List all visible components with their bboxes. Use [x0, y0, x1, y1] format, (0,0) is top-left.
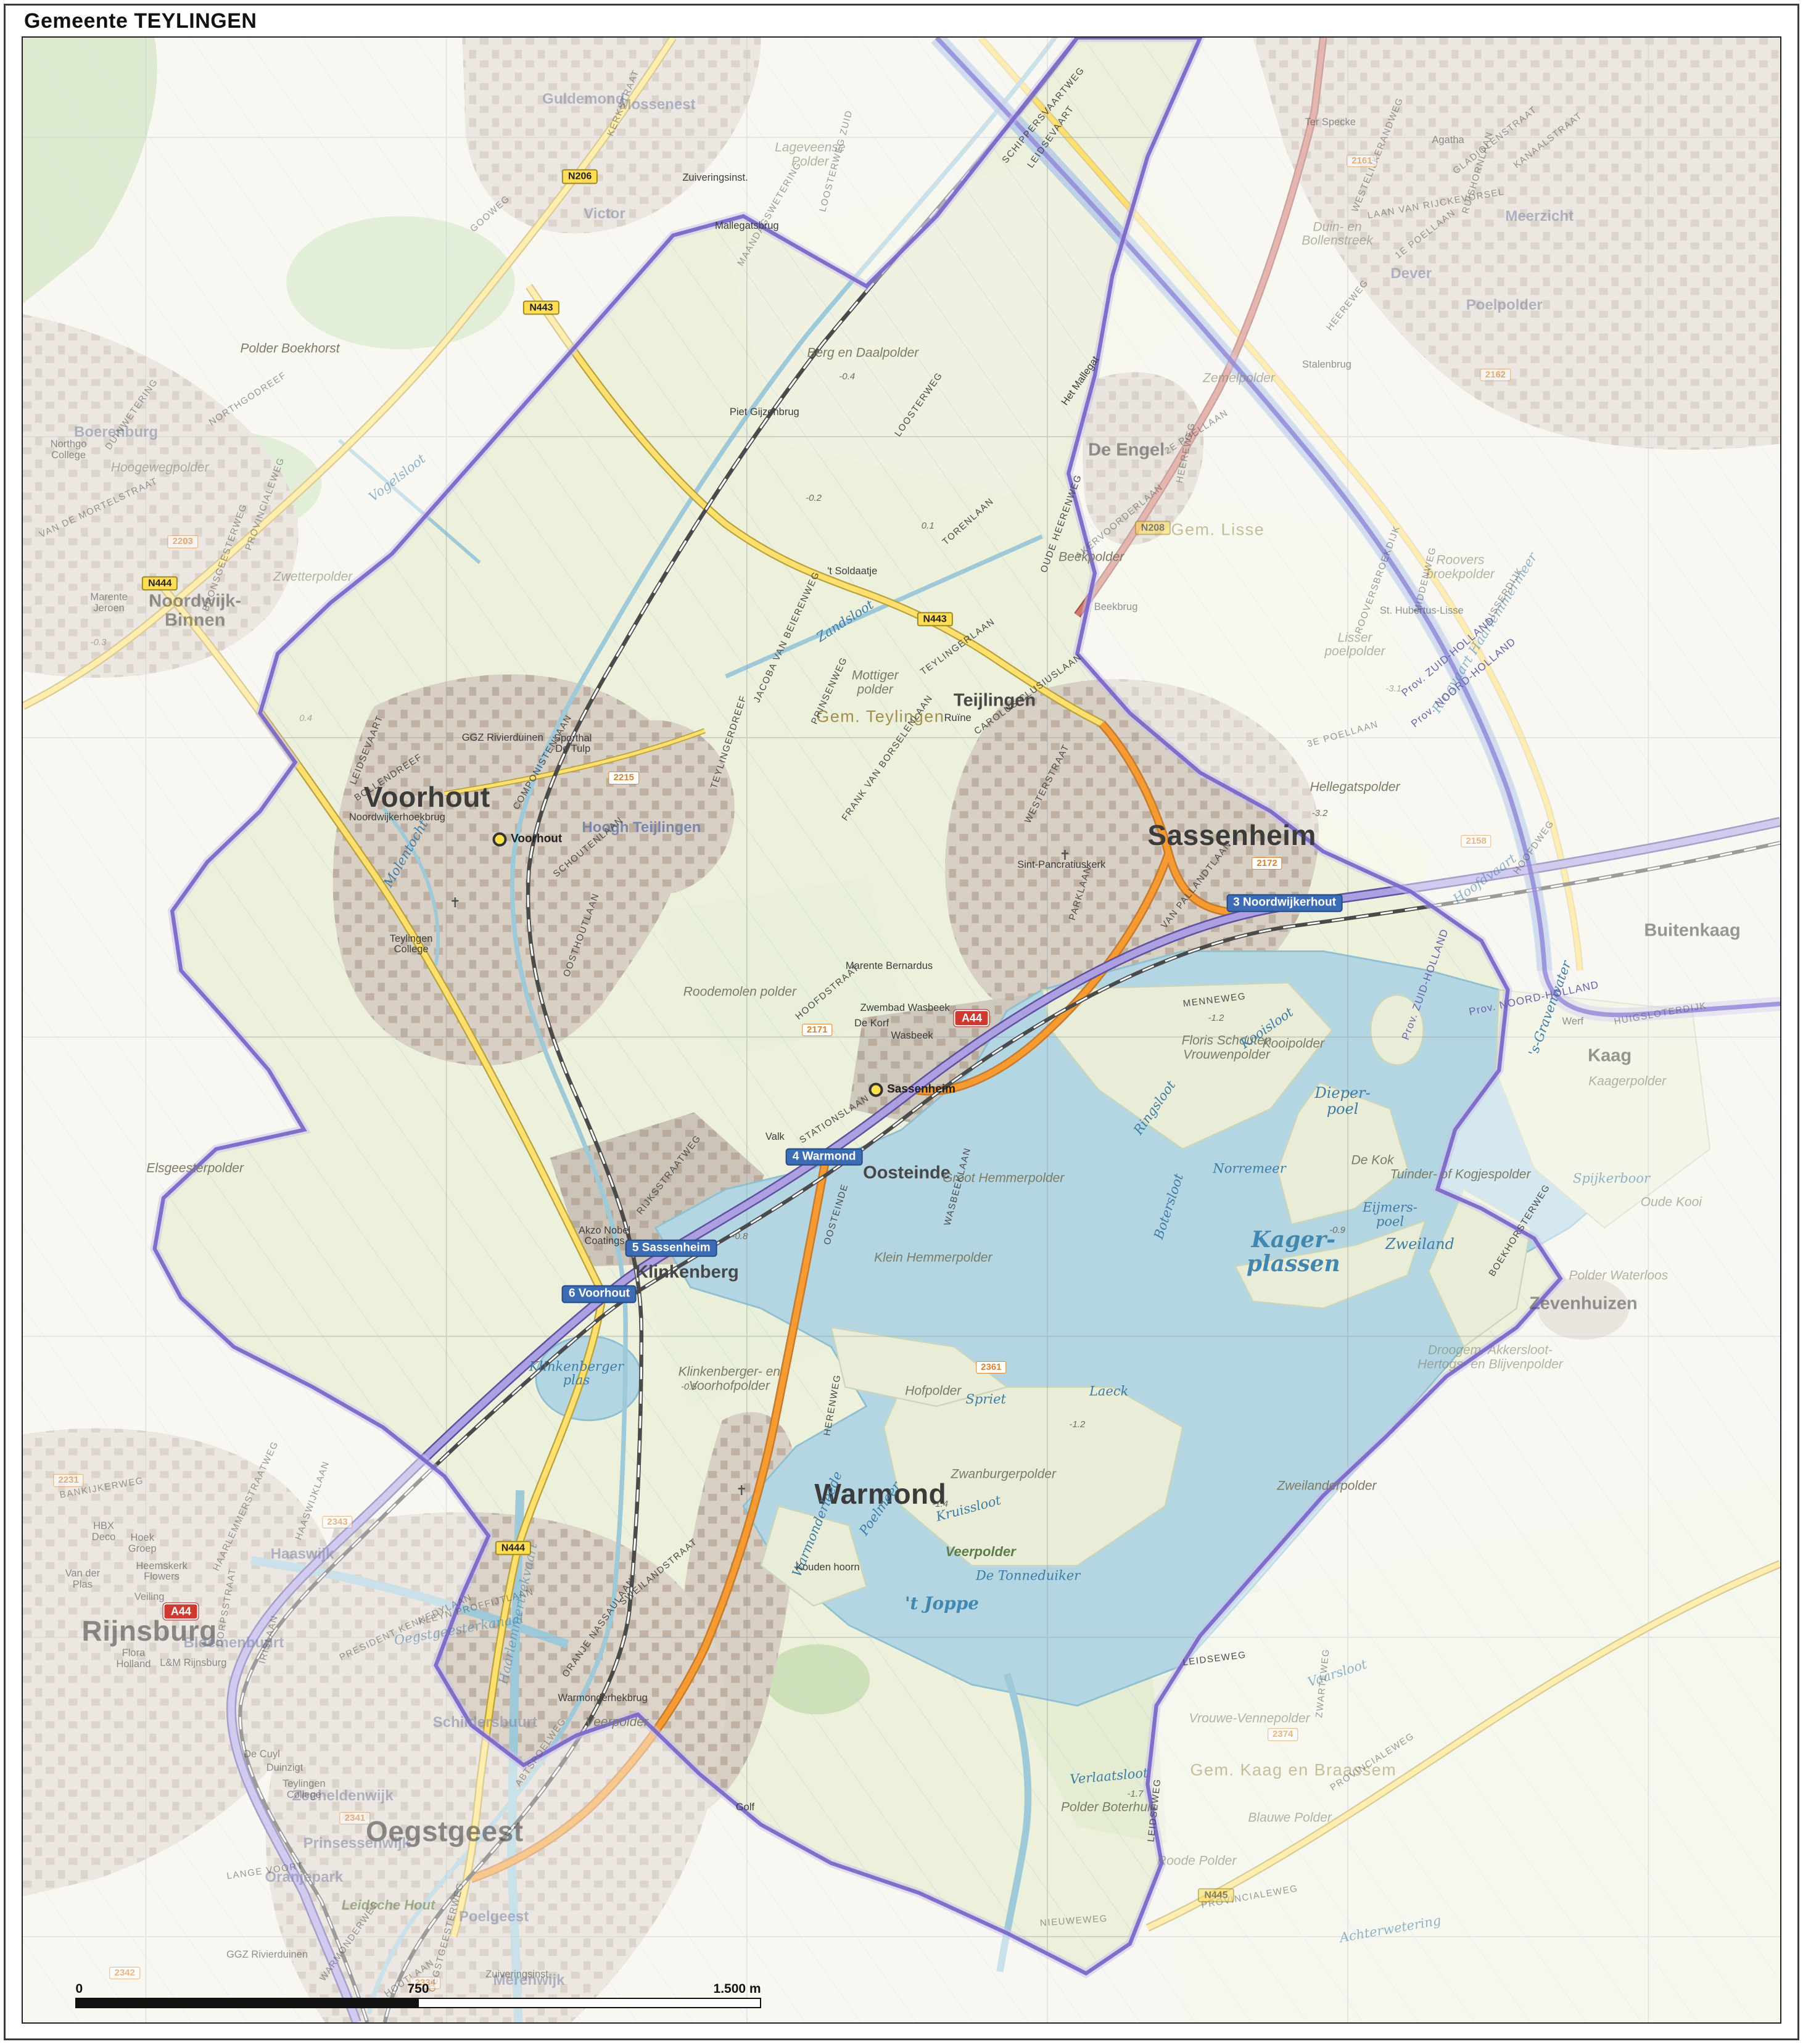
map-label: Polder Waterloos [1569, 1269, 1669, 1284]
map-label: Roodemolen polder [683, 986, 796, 1000]
map-label: Sint-Pancratiuskerk [1017, 860, 1105, 871]
map-label: Sporthal De Tulp [554, 733, 592, 756]
map-label: ROOVERSBROEKDIJK [1353, 524, 1402, 635]
map-label: Dever [1390, 266, 1432, 282]
map-label: LEIDSEWEG [1182, 1650, 1247, 1668]
map-label: N443 [917, 612, 953, 626]
map-label: Zwetterpolder [273, 571, 352, 585]
map-label: PRESIDENT KENNEDYLAAN [338, 1593, 474, 1663]
map-label: HUIGSLOTERDIJK [1614, 1001, 1708, 1027]
map-label: 2161 [1347, 154, 1377, 167]
map-label: PROVINCIALEWEG [1200, 1884, 1298, 1911]
map-label: NORTHGODREEF [207, 370, 289, 427]
map-label: IRISLAAN [258, 1614, 281, 1665]
map-label: Floris Schouten Vrouwenpolder [1182, 1034, 1272, 1061]
map-label: TORENLAAN [941, 497, 996, 548]
map-label: Poelgeest [459, 1909, 529, 1925]
map-label: 2E POELLAAN [1163, 408, 1231, 457]
map-label: 2158 [1461, 835, 1491, 847]
map-label: Warmond [814, 1479, 946, 1510]
map-label: Norremeer [1213, 1162, 1285, 1176]
map-label: MIDDENWEG [1412, 545, 1438, 613]
map-label: Stalenbrug [1302, 360, 1351, 371]
map-label: HOOFDWEG [1512, 818, 1556, 876]
map-label: 6 Voorhout [562, 1285, 637, 1303]
map-label: Haarlemmertrekvaart [497, 1541, 540, 1685]
station-name: Voorhout [511, 833, 562, 846]
map-label: Sassenheim [868, 1082, 955, 1097]
map-label: LEIDSEVAART [1026, 104, 1076, 170]
map-label: Prov. NOORD-HOLLAND [1409, 636, 1519, 730]
map-label: WARMONDERWEG [318, 1899, 382, 1984]
map-label: -0.5 [681, 1382, 697, 1392]
station-dot [492, 833, 506, 847]
map-label: GOOWEG [469, 194, 513, 234]
map-label: Oosteinde [863, 1163, 951, 1182]
map-label: Kooisloot [1238, 1005, 1296, 1051]
map-label: Zevenhuizen [1529, 1294, 1638, 1313]
map-label: Golf [736, 1803, 754, 1814]
map-label: 1E POELLAAN [1393, 207, 1458, 260]
map-label: Zandsloot [814, 598, 877, 645]
map-label: Teylingen College [390, 934, 433, 956]
map-label: Duinzigt [266, 1763, 303, 1774]
map-label: Voorhout [364, 783, 490, 814]
map-label: Zwembad Wasbeek [860, 1003, 950, 1014]
map-label: Oegstgeesterkanaal [393, 1611, 525, 1647]
map-label: 2162 [1480, 369, 1511, 381]
map-label: Vogelsloot [366, 452, 428, 505]
map-label: ABTSPOELWEG [514, 1716, 569, 1789]
map-label: Prov. NOORD-HOLLAND [1468, 979, 1600, 1018]
map-label: Sassenheim [1147, 820, 1316, 851]
map-label: De Tonneduiker [976, 1569, 1080, 1583]
map-label: Warmonderhekbrug [558, 1694, 648, 1705]
map-label: Ter Specke [1305, 117, 1356, 128]
map-label: Poelpolder [1466, 297, 1543, 313]
map-label: Vaarsloot [1306, 1657, 1369, 1689]
map-label: PARKLAAN [1068, 865, 1094, 921]
map-label: 2172 [1252, 857, 1282, 870]
map-label: HOUTLAAN [382, 1958, 436, 1999]
map-label: Het Mallegat [1060, 355, 1102, 408]
map-label: LAAN VAN RIJCKEVORSEL [1366, 188, 1504, 221]
map-label: Prinsessenwijk [303, 1836, 410, 1852]
map-label: STATIONSLAAN [798, 1093, 872, 1145]
map-label: Lageveense Polder [775, 141, 845, 168]
map-label: -1.7 [1127, 1789, 1143, 1799]
map-label: Klinkenberg [635, 1263, 739, 1282]
map-label: Buitenkaag [1644, 921, 1740, 940]
map-label: 5 Sassenheim [625, 1240, 717, 1258]
map-label: LISSERDIJK [1483, 566, 1525, 625]
map-label: Polder Boterhuis [1061, 1801, 1157, 1815]
map-label: DUINWETERING [104, 377, 160, 452]
map-label: Mallegatsbrug [715, 221, 779, 232]
map-label: Zwanburgerpolder [951, 1467, 1056, 1481]
map-label: Spijkerboor [1573, 1172, 1650, 1186]
map-label: Tuinder- of Kogjespolder [1390, 1168, 1530, 1182]
map-label: Zweiland [1385, 1237, 1454, 1253]
map-label: Hoogh Teijlingen [582, 820, 701, 836]
map: VoorhoutSassenheimWarmondRijnsburgOegstg… [22, 36, 1781, 2024]
map-label: Groot Hemmerpolder [943, 1172, 1064, 1186]
map-label: MAANDAGSWETERING [736, 160, 804, 268]
map-label: Voorhout [492, 833, 562, 847]
map-label: Teijlingen [954, 691, 1036, 710]
map-label: Meerzicht [1505, 208, 1574, 225]
map-label: Wasbeek [891, 1031, 933, 1042]
map-label: -0.8 [732, 1232, 748, 1242]
map-label: N206 [562, 170, 598, 184]
map-label: JACOBA VAN BEIERENWEG [753, 570, 822, 704]
map-label: LOOSTERWEG ZUID [818, 109, 855, 213]
map-label: KLEYN PROFFIJTLAAN [418, 1588, 535, 1628]
map-label: PROVINCIALEWEG [1329, 1731, 1416, 1793]
station-name: Sassenheim [887, 1083, 955, 1096]
map-label: Hoofdvaart [1451, 852, 1519, 907]
page-frame: Gemeente TEYLINGEN [4, 4, 1799, 2040]
map-label: L&M Rijnsburg [160, 1658, 226, 1669]
map-label: Achterwetering [1339, 1913, 1442, 1945]
map-label: Beekpolder [1058, 551, 1124, 565]
map-label: Kaagerpolder [1588, 1074, 1666, 1089]
map-label: Valk [765, 1132, 785, 1143]
map-label: Marente Jeroen [90, 592, 128, 614]
map-label: HAASWIJKLAAN [294, 1459, 331, 1541]
map-label: 2341 [340, 1811, 370, 1824]
map-label: Warmonderleede [790, 1470, 844, 1579]
map-label: Boerenburg [74, 424, 158, 440]
map-label: Teylingen College [283, 1779, 326, 1802]
map-label: COMPONISTENLAAN [512, 713, 574, 812]
map-label: N443 [523, 300, 559, 315]
map-label: OOSTEINDE [822, 1183, 851, 1247]
map-label: HERENWEG [823, 1374, 844, 1436]
map-label: -1.2 [1208, 1013, 1224, 1023]
map-label: N445 [1198, 1888, 1234, 1902]
map-label: Gem. Lisse [1171, 521, 1265, 538]
map-label: ORANJE NASSAULAAN [561, 1576, 637, 1679]
map-label: 2361 [976, 1361, 1006, 1374]
map-label: Victor [584, 206, 625, 222]
map-label: PROVINCIALEWEG [244, 456, 287, 552]
map-label: Eijmers- poel [1363, 1201, 1417, 1229]
map-label: Haaswijk [271, 1546, 334, 1562]
map-label: Droogem. Akkersloot- Hertogs- en Blijven… [1417, 1343, 1563, 1371]
map-label: Hofpolder [905, 1384, 961, 1398]
map-label: Veerpolder [585, 1716, 648, 1730]
map-label: WASBEEKLAAN [943, 1147, 973, 1227]
map-label: Zweilanderpolder [1277, 1480, 1376, 1494]
map-label: Klinkenberger plas [529, 1359, 624, 1387]
map-label: BRONSGEESTERWEG [200, 503, 249, 613]
map-label: Klein Hemmerpolder [874, 1251, 992, 1266]
map-label: Van der Plas [65, 1569, 101, 1591]
map-label: Spriet [966, 1392, 1006, 1406]
map-label: Kager- plassen [1247, 1229, 1340, 1277]
map-label: Elsgeesterpolder [146, 1162, 244, 1176]
map-label: HAARLEMMERSTRAATWEG [212, 1440, 281, 1573]
map-label: Mossenest [619, 97, 695, 113]
map-label: Hoek Groep [128, 1533, 157, 1556]
map-label: AKERVOORDERLAAN [1074, 482, 1165, 561]
map-label: 2215 [609, 772, 639, 784]
map-label: HBX Deco [92, 1521, 116, 1543]
map-label: Botersloot [1152, 1172, 1186, 1241]
map-label: 4 Warmond [786, 1148, 863, 1166]
map-label: GLADIOLENSTRAAT [1451, 105, 1539, 176]
map-label: Zuiveringsinst. [682, 173, 748, 184]
map-label: N444 [495, 1541, 531, 1555]
map-label: -0.2 [806, 493, 822, 503]
map-label: SCHOUTENLAAN [552, 815, 626, 880]
map-label: 's-Gravenwater [1526, 959, 1574, 1058]
map-label: OEGSTGEESTERWEG [427, 1881, 466, 1993]
map-label: Klinkenberger- en Voorhofpolder [679, 1366, 780, 1393]
map-label: DORPSSTRAAT [215, 1568, 238, 1648]
map-label: MENNEWEG [1182, 991, 1247, 1009]
map-label: Noordwijkerhoekbrug [349, 812, 445, 823]
map-label: Blauwe Polder [1248, 1811, 1331, 1825]
map-label: Veiling [134, 1592, 165, 1603]
map-label: Piet Gijzenbrug [730, 407, 799, 418]
map-label: Duin- en Bollenstreek [1302, 220, 1373, 248]
map-label: -1.2 [1069, 1420, 1085, 1430]
map-label: SWEILANDSTRAAT [618, 1536, 699, 1607]
map-label: Bloemenbuurt [184, 1635, 284, 1651]
map-label: ✝ [736, 1483, 747, 1498]
map-label: TEYLINGERDREEF [709, 694, 749, 791]
map-label: Ruïne [944, 713, 972, 724]
map-label: De Engel [1088, 441, 1165, 460]
map-label: HOOFDSTRAAT [794, 963, 862, 1022]
map-label: Beekbrug [1094, 602, 1138, 613]
map-label: PRINSENWEG [809, 656, 849, 726]
map-label: OOSTHOUTLAAN [562, 891, 601, 978]
map-label: 2203 [168, 535, 198, 548]
map-label: Lisser poelpolder [1324, 631, 1385, 659]
map-label: 't Joppe [905, 1594, 979, 1613]
map-label: -1.4 [932, 1499, 948, 1509]
map-label: -0.4 [839, 372, 855, 382]
map-label: HEEREWEG [1175, 421, 1198, 484]
map-label: Vrouwe-Vennepolder [1189, 1712, 1310, 1726]
map-label: HEEREWEG [1325, 278, 1371, 333]
map-label: LEIDSEWEG [1146, 1778, 1163, 1842]
map-label: GGZ Rivierduinen [462, 733, 543, 744]
map-label: Hoogewegpolder [111, 461, 209, 476]
map-label: Laeck [1089, 1384, 1128, 1398]
map-label: 0.1 [922, 521, 935, 531]
map-label: Guldemond [542, 91, 624, 107]
station-dot [868, 1082, 883, 1097]
map-label: LOOSTERWEG [893, 371, 945, 439]
map-label: KANAALSTRAAT [1512, 111, 1585, 171]
map-label: GGZ Rivierduinen [226, 1950, 308, 1961]
map-label: TEYLINGERLAAN [918, 617, 997, 677]
map-label: Berg en Daalpolder [807, 346, 918, 360]
map-label: Akzo Nobel Coatings [579, 1226, 630, 1248]
map-label: Leidsche Hout [342, 1898, 435, 1913]
map-label: Heemskerk Flowers [136, 1561, 187, 1583]
map-label: 2334 [410, 1977, 440, 1989]
map-label: LANGE VOORT [226, 1861, 305, 1882]
map-label: Polder Boekhorst [241, 342, 340, 356]
map-label: Veerpolder [946, 1544, 1016, 1559]
map-label: Oude Kooi [1641, 1196, 1702, 1210]
map-label: N444 [142, 576, 178, 590]
map-label: VAN DE MORTELSTRAAT [38, 476, 159, 540]
map-label: Flora Holland [117, 1648, 151, 1670]
map-label: Gem. Kaag en Braassem [1190, 1762, 1397, 1779]
map-label: 3E POELLAAN [1306, 719, 1379, 749]
label-layer: VoorhoutSassenheimWarmondRijnsburgOegstg… [23, 38, 1780, 2022]
map-label: Schildersbuurt [433, 1715, 537, 1731]
map-label: OUDE HEERENWEG [1039, 474, 1084, 575]
map-label: Zuiveringsinst. [485, 1969, 551, 1980]
map-label: Ringsloot [1131, 1078, 1178, 1137]
map-label: Kruissloot [935, 1493, 1002, 1524]
map-label: -0.3 [91, 638, 107, 648]
map-label: BANKIJKERWEG [59, 1476, 145, 1501]
map-label: ✝ [450, 896, 461, 910]
map-label: Dieper- poel [1314, 1086, 1370, 1118]
map-label: Prov. ZUID-HOLLAND [1400, 927, 1450, 1041]
map-label: Oegstgeest [366, 1816, 524, 1847]
map-label: BOEKHORSTERWEG [1488, 1182, 1553, 1278]
map-label: Noordwijk- Binnen [149, 592, 241, 631]
map-label: Ringvaart Haarlemmermeer [1430, 551, 1540, 715]
map-label: LEIDSEVAART [349, 714, 386, 786]
map-label: ZWARTEWEG [1314, 1648, 1332, 1718]
map-label: KERKSTRAAT [606, 68, 642, 138]
map-label: Zeeheldenwijk [292, 1788, 393, 1804]
map-label: De Kok [1351, 1154, 1394, 1168]
map-label: -3.1 [1385, 683, 1401, 693]
map-label: Gem. Teylingen [816, 707, 944, 725]
page-title: Gemeente TEYLINGEN [24, 9, 257, 33]
map-label: NIEUWEWEG [1039, 1914, 1108, 1929]
map-label: ✝ [1059, 848, 1070, 863]
map-label: 2343 [322, 1516, 352, 1528]
map-label: CAROLUS CLUSIUSLAAN [972, 653, 1083, 737]
map-label: 2342 [110, 1966, 140, 1979]
map-label: Werf [1562, 1016, 1584, 1028]
map-label: St. Hubertus-Lisse [1380, 606, 1464, 617]
map-label: Prov. ZUID-HOLLAND [1400, 615, 1497, 699]
map-label: Marente Bernardus [846, 961, 933, 972]
map-label: 3 Noordwijkerhout [1226, 894, 1343, 912]
map-label: Hellegatspolder [1310, 781, 1400, 795]
map-label: Merenwijk [493, 1972, 564, 1988]
map-label: Kooipolder [1263, 1037, 1324, 1051]
map-label: 2231 [53, 1474, 83, 1486]
map-label: 't Soldaatje [827, 566, 877, 577]
map-label: BOLLENDREEF [353, 752, 424, 804]
map-label: Oranjepark [265, 1869, 343, 1885]
map-label: Molentocht [381, 817, 431, 889]
map-label: De Cuyl [244, 1749, 280, 1760]
map-label: VAN PALLANDTLAAN [1160, 839, 1234, 931]
map-label: WESTELIJKERANDWEG [1350, 96, 1406, 213]
map-label: -3.2 [1312, 809, 1328, 818]
map-label: Kouden hoorn [796, 1562, 860, 1573]
map-label: Northgo College [51, 440, 87, 462]
map-label: SCHIPPERSVAARTWEG [1001, 65, 1087, 165]
map-label: Roode Polder [1157, 1855, 1236, 1869]
map-label: -0.9 [1329, 1226, 1345, 1235]
map-label: Rijnsburg [82, 1616, 217, 1647]
map-label: 2374 [1268, 1728, 1298, 1741]
map-label: N208 [1135, 521, 1171, 535]
map-label: Roovers broekpolder [1426, 554, 1495, 582]
map-label: Verlaatsloot [1069, 1766, 1149, 1787]
map-label: 2171 [802, 1024, 832, 1036]
map-label: De Korf [854, 1018, 889, 1029]
map-label: Zemelpolder [1203, 372, 1275, 386]
map-label: WESTERSTRAAT [1023, 743, 1072, 825]
map-label: FRANK VAN BORSELENLAAN [840, 693, 935, 823]
map-label: Kaag [1588, 1046, 1632, 1065]
map-label: Mottiger polder [852, 669, 899, 696]
map-label: A44 [954, 1010, 989, 1026]
map-label: A44 [163, 1603, 199, 1620]
map-label: RIJKSSTRAATWEG [635, 1133, 704, 1216]
map-label: Agatha [1432, 135, 1464, 146]
map-label: RUISHORNLAAN [1461, 130, 1495, 215]
map-label: Poelmeer [857, 1479, 904, 1538]
map-label: 0.4 [299, 714, 312, 723]
